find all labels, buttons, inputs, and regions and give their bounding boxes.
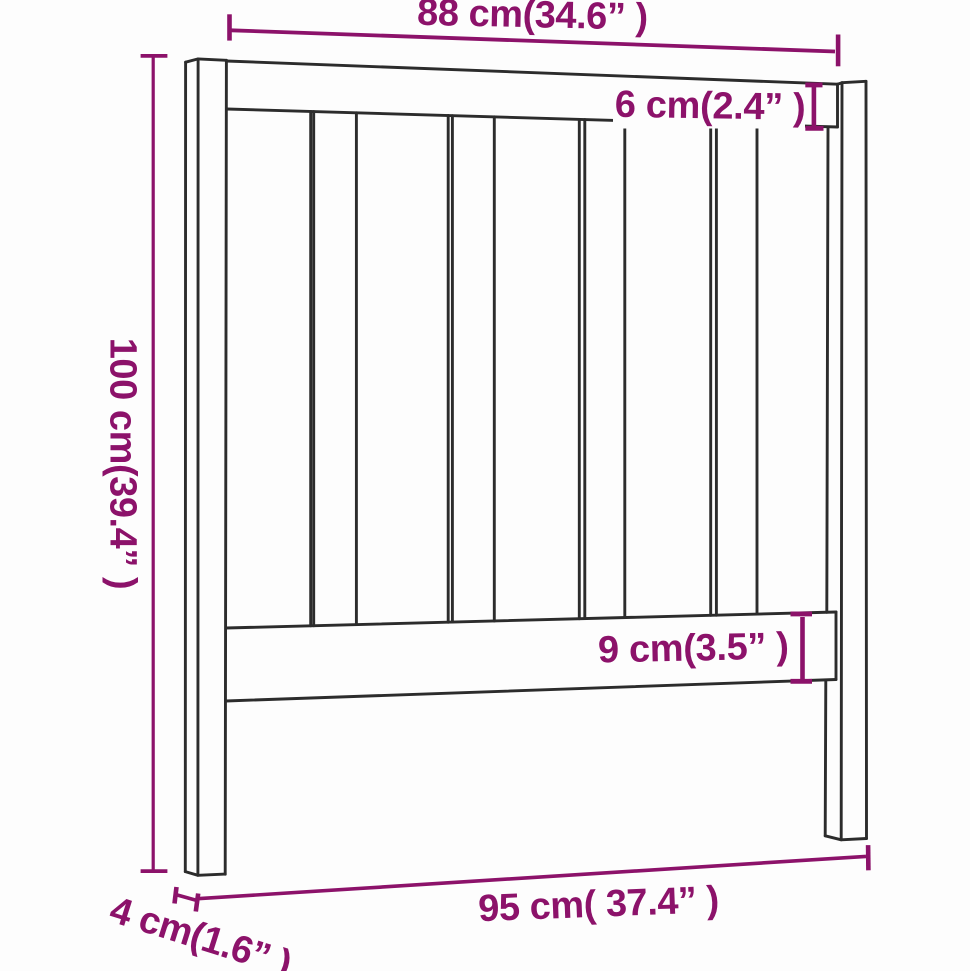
svg-text:88 cm(34.6” ): 88 cm(34.6” )	[417, 0, 649, 39]
svg-text:6 cm(2.4” ): 6 cm(2.4” )	[614, 84, 806, 129]
svg-text:9 cm(3.5” ): 9 cm(3.5” )	[598, 626, 790, 672]
svg-text:100 cm(39.4” ): 100 cm(39.4” )	[102, 338, 144, 590]
